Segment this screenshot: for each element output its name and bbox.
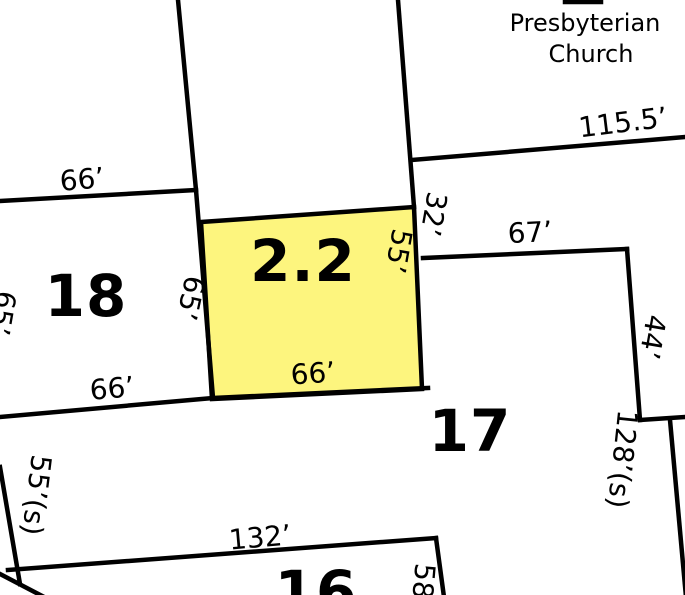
lot16-north-line-132 — [8, 538, 436, 570]
church-label-line1: Presbyterian — [510, 11, 661, 35]
parcel-label-17: 17 — [429, 402, 512, 460]
parcel-label-16: 16 — [275, 563, 358, 595]
dimension-32: 32’ — [415, 190, 450, 239]
dimension-55-yellow: 55’ — [380, 227, 415, 276]
east-line-128 — [670, 420, 685, 595]
dimension-58: 58 — [408, 562, 439, 595]
church-label-line2: Church — [549, 42, 634, 66]
dimension-132: 132’ — [228, 521, 293, 554]
lot17-north-line-67 — [423, 249, 627, 258]
dimension-55-s: 55’(s) — [17, 453, 55, 537]
dimension-66-yellow: 66’ — [290, 358, 336, 389]
dimension-65-yellow: 65’ — [172, 273, 209, 322]
dimension-67: 67’ — [507, 218, 553, 248]
west-street-line — [178, 0, 213, 398]
parcel-label-2-2: 2.2 — [250, 232, 356, 290]
dimension-66-mid: 66’ — [89, 373, 136, 405]
dimension-44: 44’ — [634, 313, 669, 362]
church-west-line — [398, 0, 414, 207]
dimension-66-top: 66’ — [59, 164, 106, 196]
parcel-label-18: 18 — [45, 267, 128, 325]
east-jog-line — [640, 417, 685, 420]
church-south-line-115 — [412, 137, 685, 160]
southwest-corner-line — [0, 574, 46, 595]
dimension-128-s: 128’(s) — [603, 408, 641, 509]
parcel-map: Presbyterian Church 18 2.2 17 16 66’ 66’… — [0, 0, 685, 595]
